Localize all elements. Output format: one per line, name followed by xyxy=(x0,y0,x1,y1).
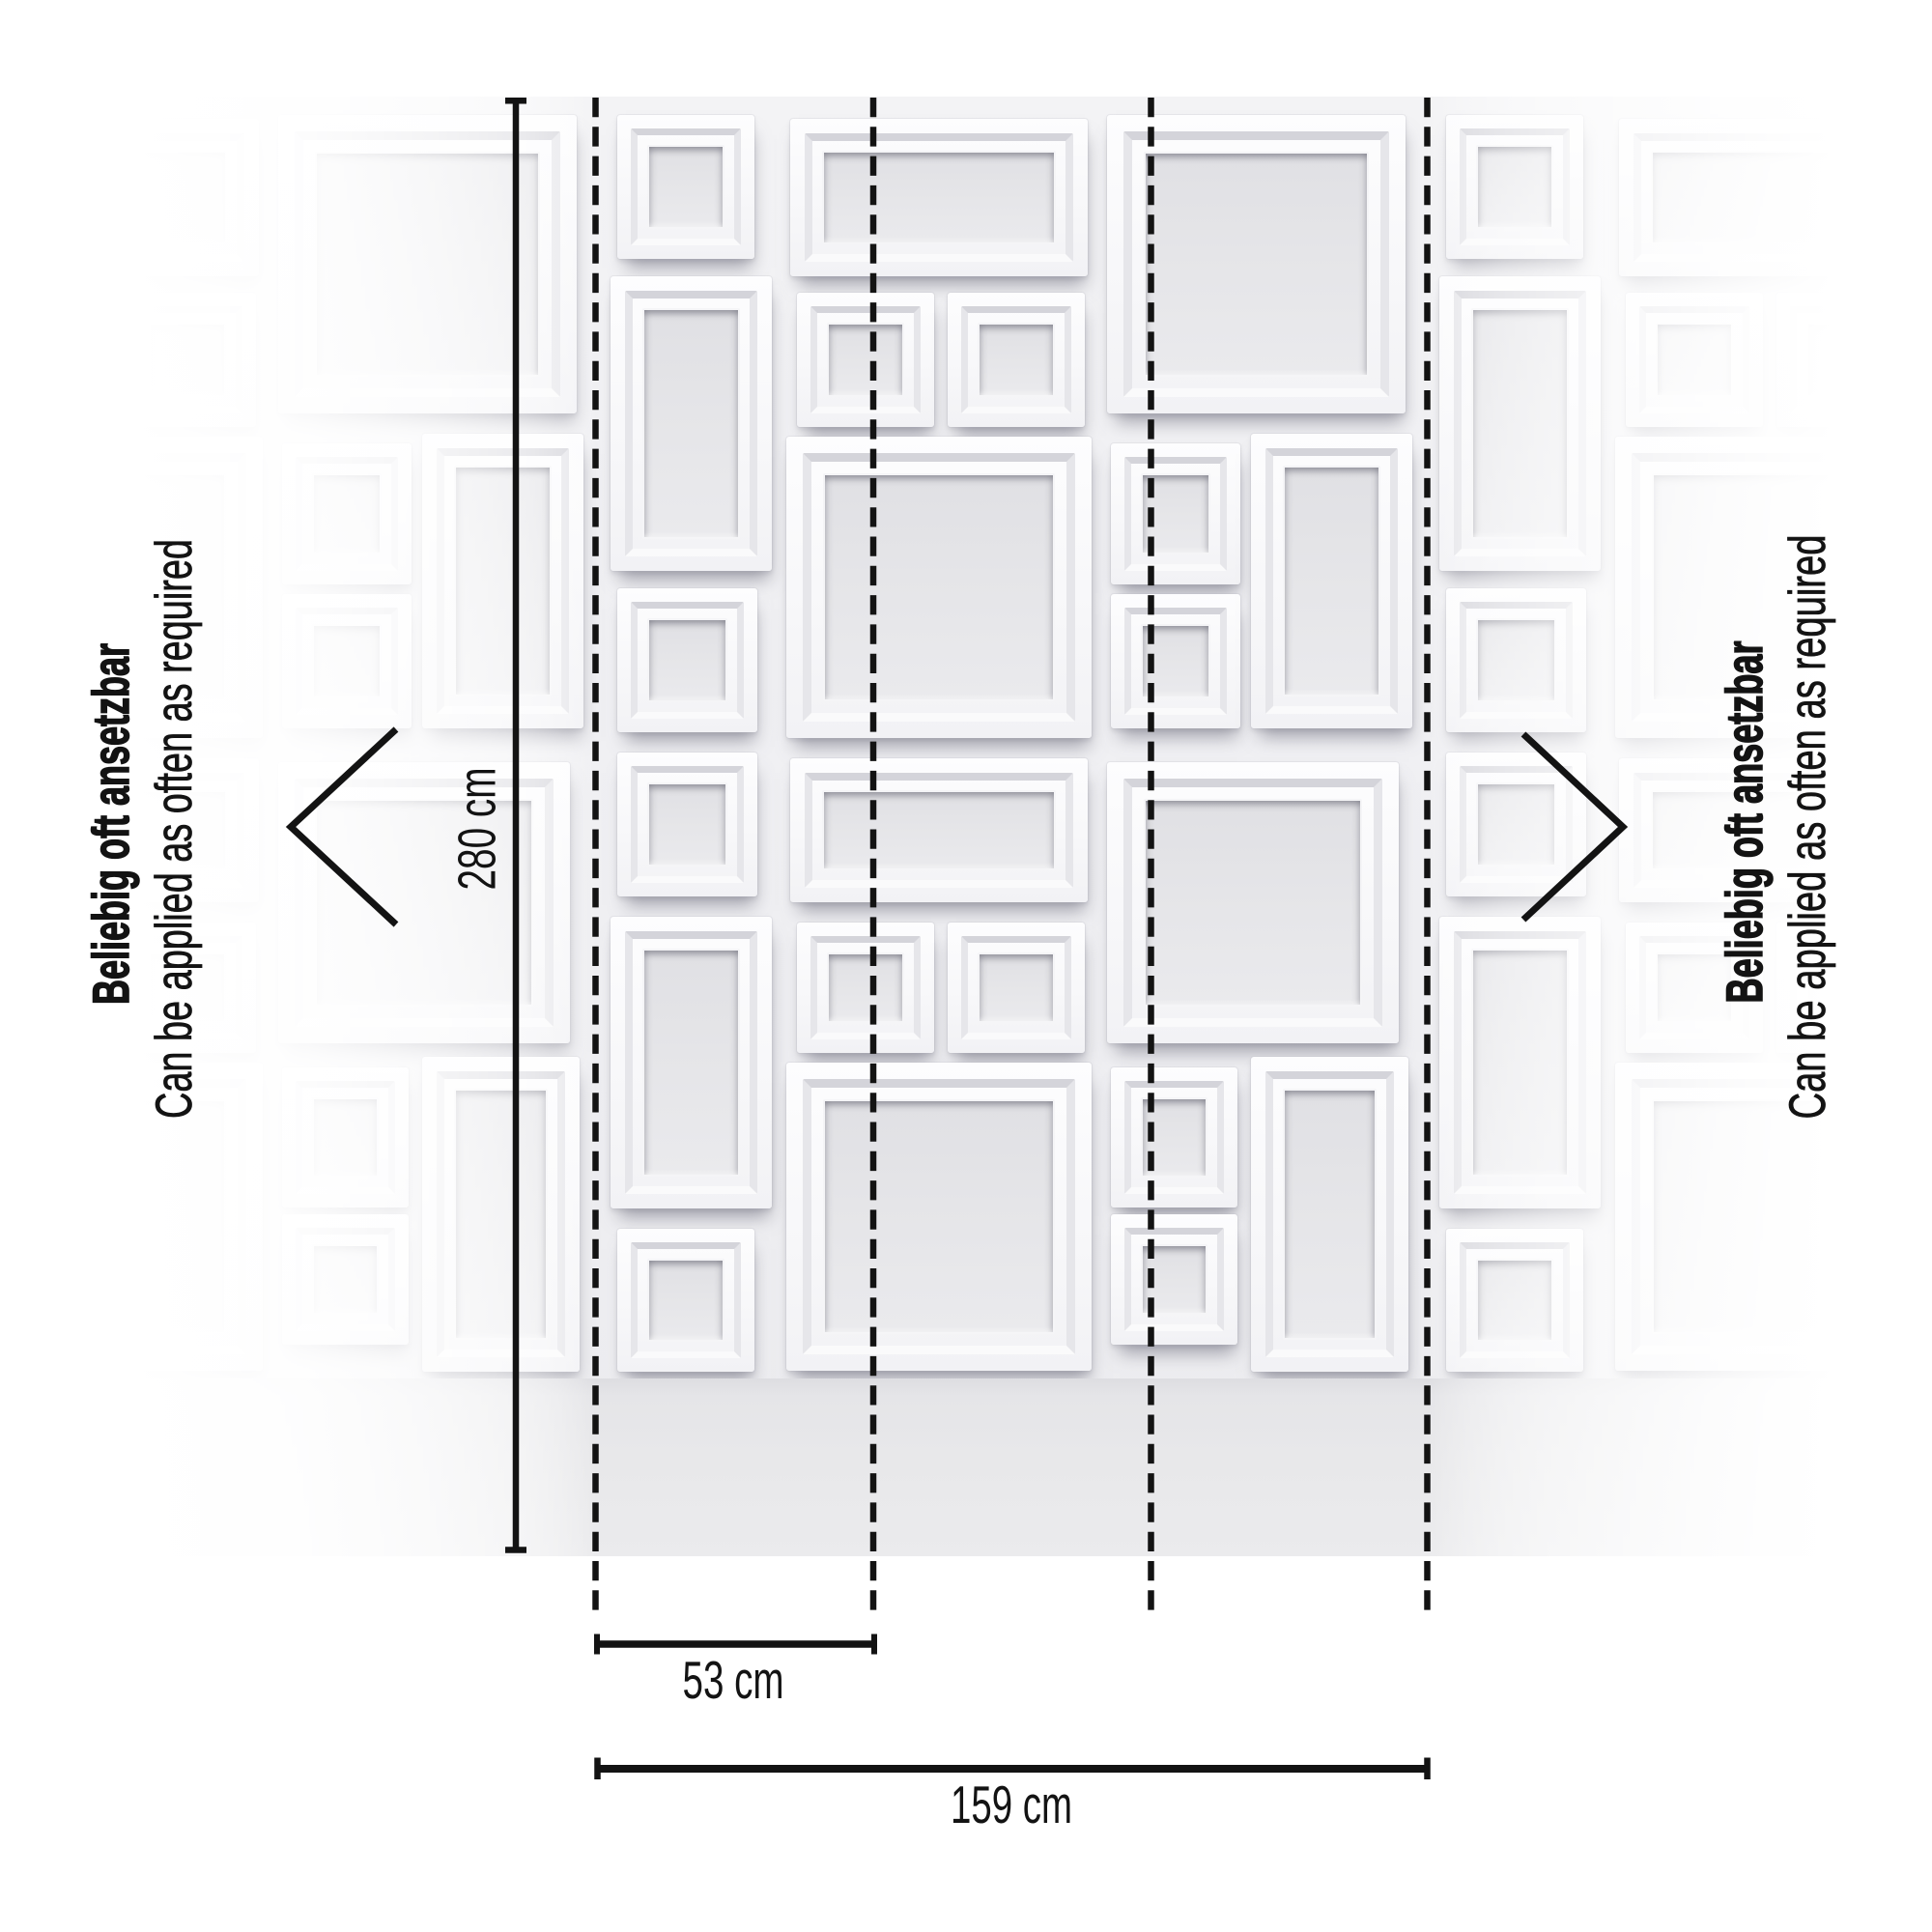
svg-text:Can be applied as often as req: Can be applied as often as required xyxy=(146,539,203,1119)
svg-text:Can be applied as often as req: Can be applied as often as required xyxy=(1779,535,1836,1120)
svg-text:53 cm: 53 cm xyxy=(683,1650,784,1710)
svg-text:Beliebig oft ansetzbar: Beliebig oft ansetzbar xyxy=(83,643,140,1005)
svg-text:Beliebig oft ansetzbar: Beliebig oft ansetzbar xyxy=(1717,641,1774,1004)
svg-text:159 cm: 159 cm xyxy=(951,1775,1072,1834)
svg-text:280 cm: 280 cm xyxy=(447,768,507,891)
